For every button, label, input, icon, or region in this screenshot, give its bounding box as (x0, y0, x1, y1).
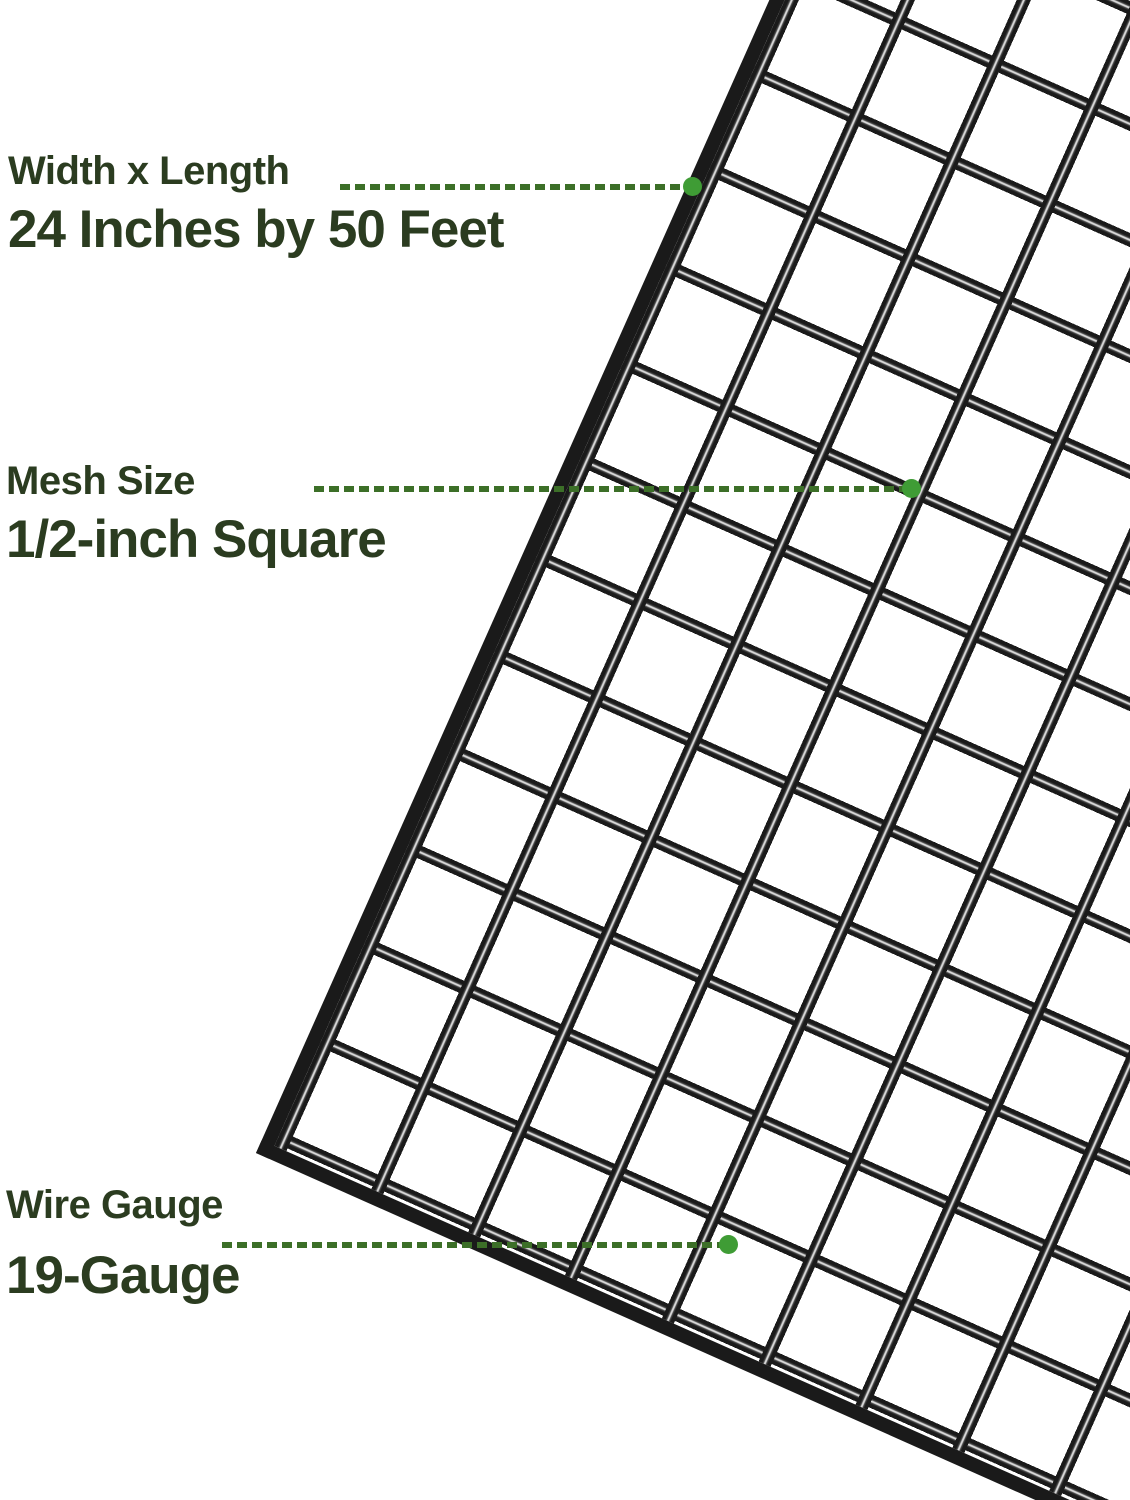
leader-line-wire-gauge (222, 1242, 724, 1248)
callout-width-length-value: 24 Inches by 50 Feet (8, 200, 504, 261)
callout-mesh-size-label: Mesh Size (6, 458, 386, 504)
callout-wire-gauge-value: 19-Gauge (6, 1246, 240, 1307)
callout-mesh-size: Mesh Size 1/2-inch Square (6, 458, 386, 571)
leader-line-mesh-size (314, 486, 906, 492)
leader-line-width-length (340, 184, 686, 190)
callout-mesh-size-value: 1/2-inch Square (6, 510, 386, 571)
callout-width-length: Width x Length 24 Inches by 50 Feet (8, 148, 504, 261)
callout-wire-gauge: Wire Gauge 19-Gauge (6, 1182, 240, 1307)
leader-dot-width-length (683, 177, 702, 196)
leader-dot-wire-gauge (719, 1235, 738, 1254)
callout-wire-gauge-label: Wire Gauge (6, 1182, 240, 1228)
product-infographic: Width x Length 24 Inches by 50 Feet Mesh… (0, 0, 1130, 1500)
leader-dot-mesh-size (902, 479, 921, 498)
